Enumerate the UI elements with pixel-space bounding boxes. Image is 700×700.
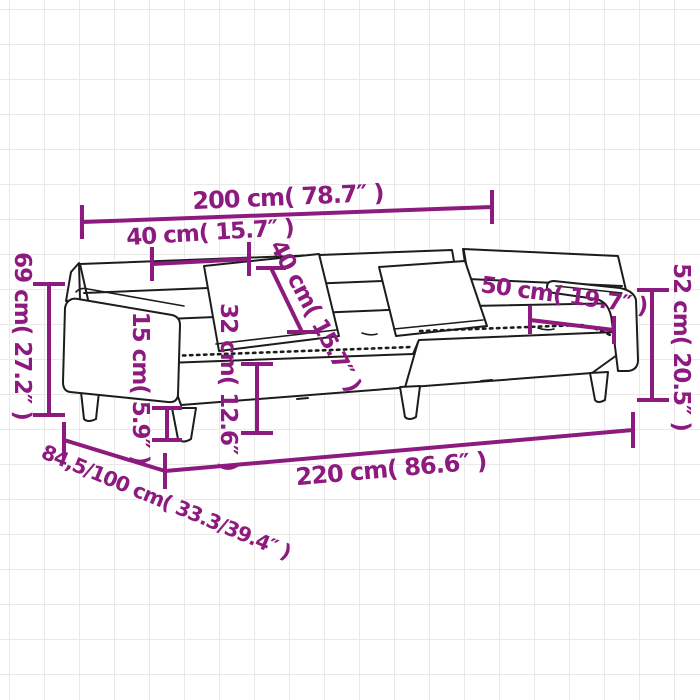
backrest-corner-flap [66,263,80,301]
sofa-leg-4 [590,372,608,402]
dim-label-leg-height: 15 cm( 5.9″ ) [127,312,153,465]
dimension-depth: 84,5/100 cm( 33.3/39.4″ ) [38,422,294,564]
sofa-dimension-figure: 200 cm( 78.7″ ) 40 cm( 15.7″ ) 40 cm( 15… [0,0,700,700]
sofa-leg-2 [172,408,196,442]
dimension-total-height: 69 cm( 27.2″ ) [9,252,65,420]
dim-label-total-width: 220 cm( 86.6″ ) [295,447,488,492]
dim-label-total-height: 69 cm( 27.2″ ) [9,252,35,420]
base-fitting-tab-1 [297,398,308,399]
dim-label-back-width: 200 cm( 78.7″ ) [192,179,384,215]
dimension-diagram: 200 cm( 78.7″ ) 40 cm( 15.7″ ) 40 cm( 15… [0,0,700,700]
dim-label-seat-height: 32 cm( 12.6″ ) [215,303,241,471]
sofa-leg-1 [81,392,99,421]
dimension-armrest-height: 52 cm( 20.5″ ) [637,263,694,431]
base-fitting-tab-2 [481,380,492,381]
sofa-leg-3 [400,386,420,419]
dim-label-armrest-height: 52 cm( 20.5″ ) [668,263,694,431]
